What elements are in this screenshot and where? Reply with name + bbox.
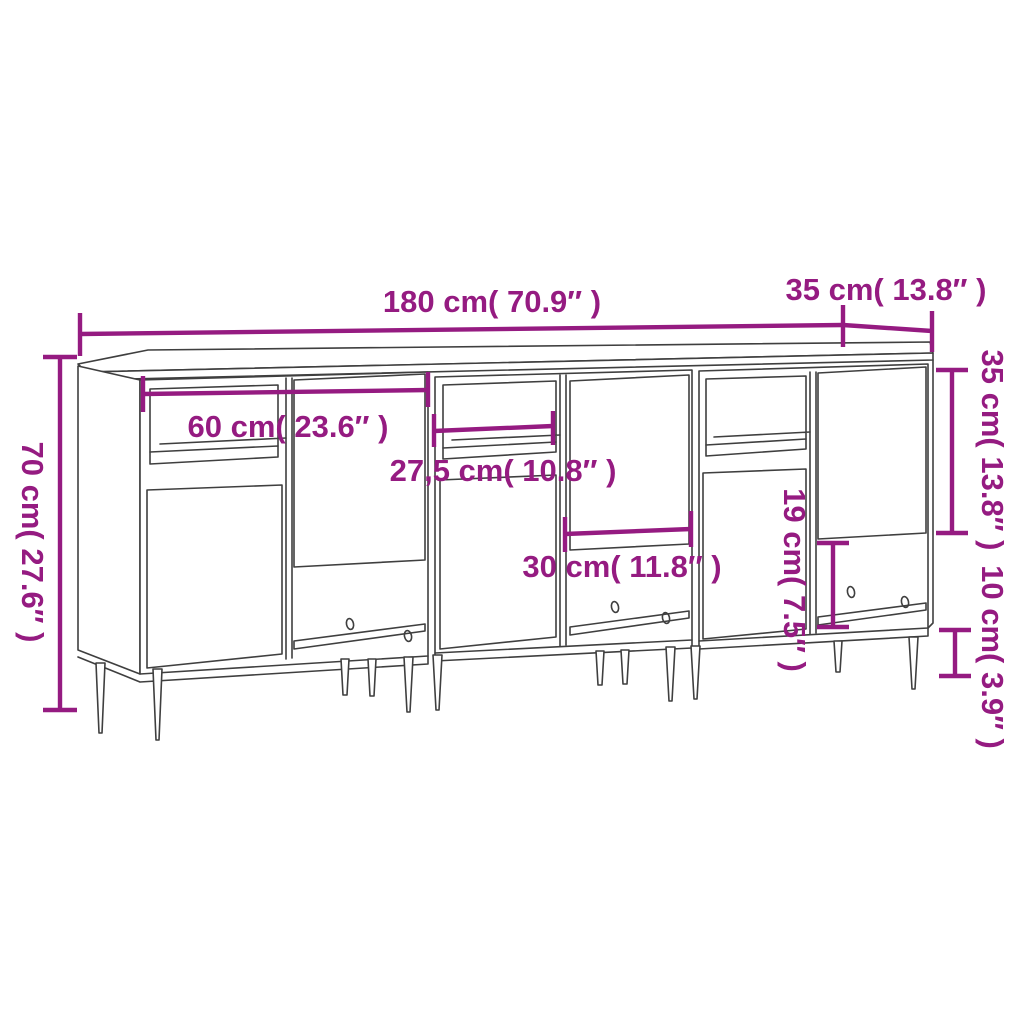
left-side-panel — [78, 366, 140, 674]
leg — [666, 647, 675, 701]
dim-total-height-label: 70 cm( 27.6″ ) — [15, 442, 50, 643]
dim-depth-line — [843, 325, 932, 331]
dim-door-width-label: 30 cm( 11.8″ ) — [522, 549, 721, 584]
dim-door-height-label: 35 cm( 13.8″ ) — [975, 350, 1010, 551]
leg — [596, 651, 604, 685]
dim-unit-interior-width-label: 60 cm( 23.6″ ) — [188, 409, 389, 444]
dim-open-compartment-height-label: 19 cm( 7.5″ ) — [777, 488, 812, 672]
dim-leg-height: 10 cm( 3.9″ ) — [939, 565, 1010, 749]
leg — [96, 663, 105, 733]
dim-depth: 35 cm( 13.8″ ) — [786, 272, 987, 352]
leg — [909, 637, 918, 689]
dim-depth-label: 35 cm( 13.8″ ) — [786, 272, 987, 307]
sideboard-unit-2 — [435, 370, 692, 653]
dim-leg-height-label: 10 cm( 3.9″ ) — [975, 565, 1010, 749]
diagram-canvas: 180 cm( 70.9″ ) 35 cm( 13.8″ ) 70 cm( 27… — [0, 0, 1024, 1024]
leg — [153, 669, 162, 740]
leg — [341, 659, 349, 695]
leg — [691, 646, 700, 699]
leg — [404, 657, 413, 712]
sideboard-unit-3 — [699, 360, 933, 641]
dim-total-width-label: 180 cm( 70.9″ ) — [383, 284, 601, 319]
dim-shelf-width-label: 27,5 cm( 10.8″ ) — [390, 453, 617, 488]
leg — [621, 650, 629, 684]
dim-total-height: 70 cm( 27.6″ ) — [15, 357, 77, 710]
dim-total-width-line — [80, 325, 843, 334]
unit-3-right-door — [818, 367, 926, 539]
leg — [368, 659, 376, 696]
dim-door-height: 35 cm( 13.8″ ) — [936, 350, 1010, 551]
unit-1-left-door — [147, 485, 282, 668]
dimension-diagram: 180 cm( 70.9″ ) 35 cm( 13.8″ ) 70 cm( 27… — [0, 0, 1024, 1024]
leg — [433, 655, 442, 710]
leg — [834, 641, 842, 672]
